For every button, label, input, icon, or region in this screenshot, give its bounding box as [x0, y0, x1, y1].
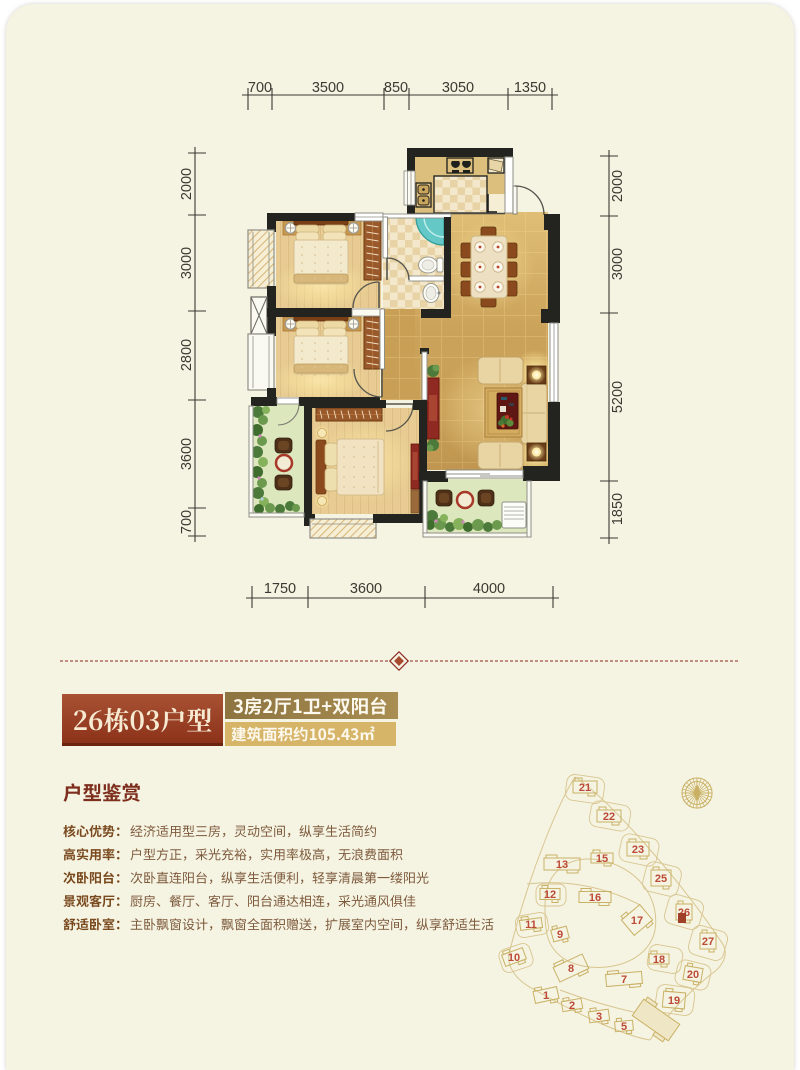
svg-text:1: 1 [543, 990, 549, 1002]
svg-text:2800: 2800 [179, 339, 195, 371]
svg-text:8: 8 [568, 963, 574, 975]
svg-text:16: 16 [589, 892, 601, 904]
svg-text:5: 5 [621, 1021, 627, 1033]
svg-text:22: 22 [603, 811, 615, 823]
svg-text:25: 25 [655, 873, 667, 885]
svg-text:27: 27 [702, 936, 714, 948]
svg-text:3000: 3000 [179, 247, 195, 279]
svg-text:23: 23 [632, 844, 644, 856]
svg-text:1750: 1750 [264, 581, 296, 597]
svg-text:18: 18 [653, 954, 665, 966]
svg-text:700: 700 [248, 80, 272, 96]
svg-text:3: 3 [596, 1011, 602, 1023]
svg-text:17: 17 [631, 915, 643, 927]
svg-text:20: 20 [687, 969, 699, 981]
svg-text:700: 700 [179, 510, 195, 534]
svg-text:2000: 2000 [179, 168, 195, 200]
svg-text:2: 2 [569, 1000, 575, 1012]
svg-text:12: 12 [544, 889, 556, 901]
svg-text:850: 850 [384, 80, 408, 96]
svg-text:3500: 3500 [312, 80, 344, 96]
svg-text:3050: 3050 [442, 80, 474, 96]
svg-text:4000: 4000 [473, 581, 505, 597]
svg-text:3000: 3000 [610, 248, 626, 280]
svg-text:2000: 2000 [610, 170, 626, 202]
svg-text:5200: 5200 [610, 381, 626, 413]
svg-text:1350: 1350 [514, 80, 546, 96]
svg-text:10: 10 [508, 952, 520, 964]
svg-text:7: 7 [621, 974, 627, 986]
svg-text:19: 19 [668, 995, 680, 1007]
svg-text:21: 21 [579, 782, 591, 794]
svg-text:3600: 3600 [179, 438, 195, 470]
svg-text:3600: 3600 [350, 581, 382, 597]
svg-text:15: 15 [596, 853, 608, 865]
svg-text:13: 13 [556, 859, 568, 871]
svg-text:1850: 1850 [610, 493, 626, 525]
svg-text:9: 9 [557, 929, 563, 941]
svg-text:11: 11 [525, 919, 537, 931]
